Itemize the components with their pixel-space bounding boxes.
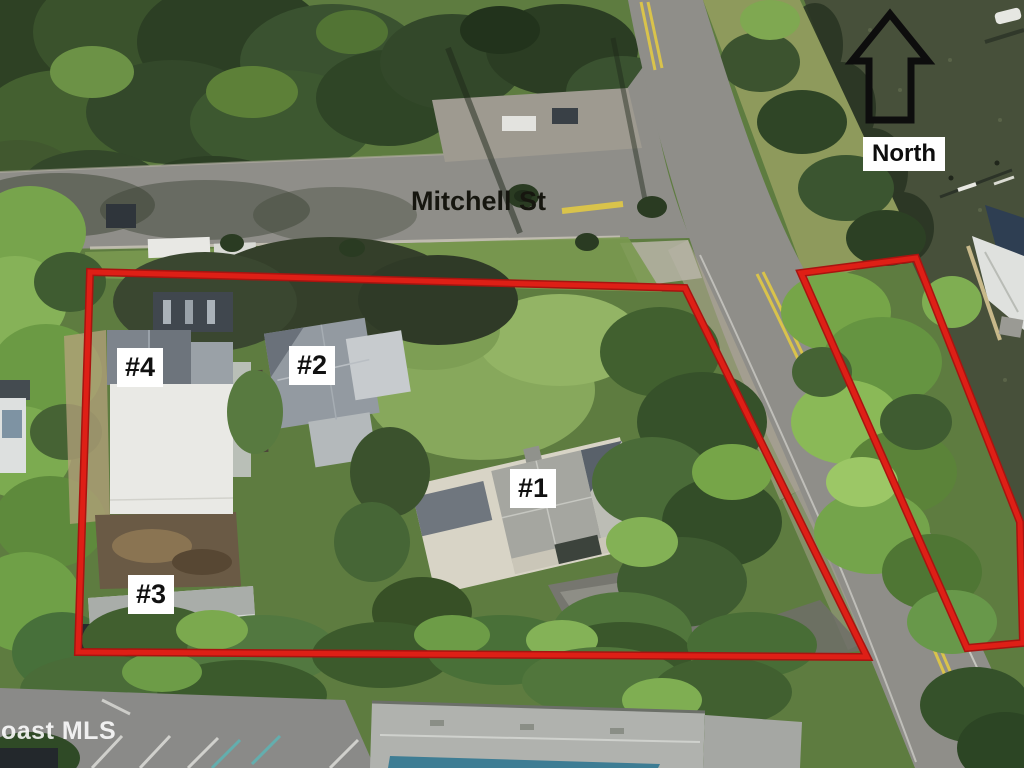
aerial-property-photo: Mitchell St North #1 #2 #3 #4 oast MLS [0,0,1024,768]
unit-label-3: #3 [128,575,174,614]
unit-label-4: #4 [117,348,163,387]
north-label: North [863,137,945,171]
mls-watermark: oast MLS [1,719,116,744]
unit-label-2: #2 [289,346,335,385]
street-name-label: Mitchell St [411,188,546,215]
unit-label-1: #1 [510,469,556,508]
